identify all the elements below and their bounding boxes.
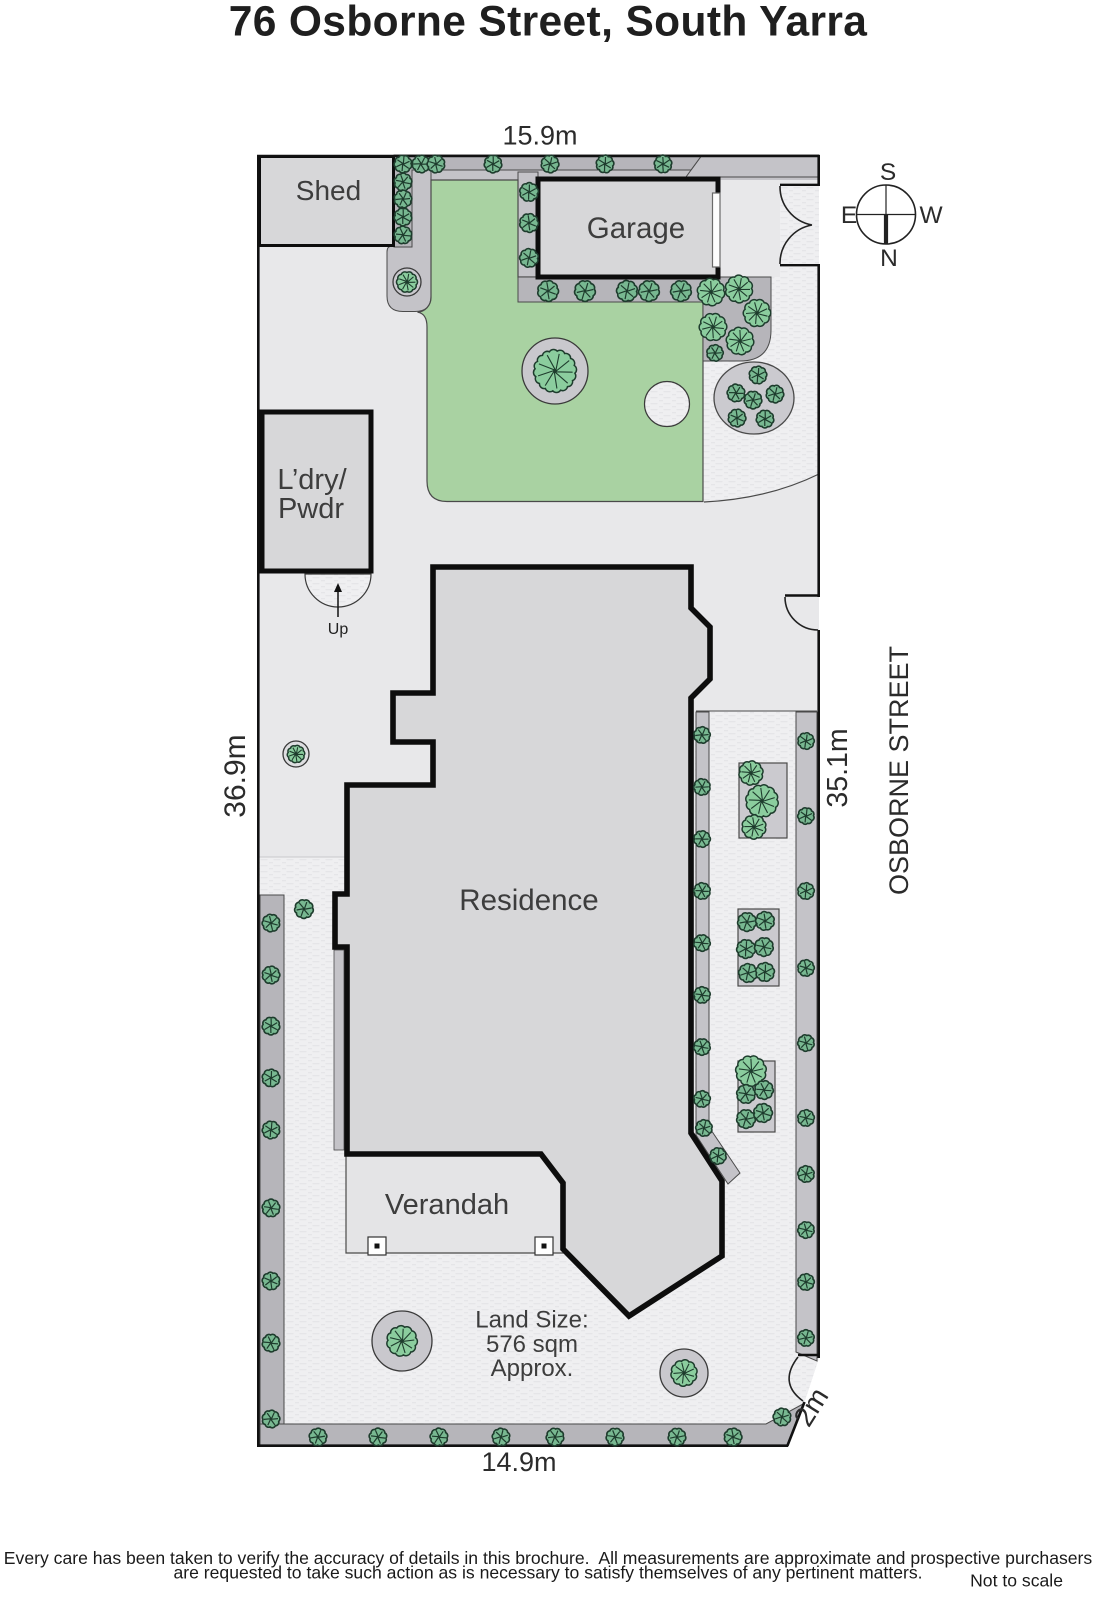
svg-text:576 sqm: 576 sqm bbox=[486, 1331, 578, 1358]
svg-text:15.9m: 15.9m bbox=[502, 121, 577, 151]
svg-text:Pwdr: Pwdr bbox=[278, 493, 344, 525]
svg-text:Garage: Garage bbox=[587, 212, 685, 245]
svg-text:14.9m: 14.9m bbox=[481, 1447, 556, 1477]
svg-text:Approx.: Approx. bbox=[491, 1355, 574, 1382]
svg-text:Land Size:: Land Size: bbox=[475, 1307, 588, 1334]
svg-text:N: N bbox=[880, 245, 898, 272]
svg-text:Up: Up bbox=[328, 621, 349, 638]
svg-text:Residence: Residence bbox=[459, 884, 598, 917]
svg-text:W: W bbox=[919, 202, 943, 229]
svg-text:35.1m: 35.1m bbox=[822, 728, 854, 807]
svg-text:S: S bbox=[880, 159, 896, 186]
svg-text:E: E bbox=[841, 202, 857, 229]
svg-text:Verandah: Verandah bbox=[385, 1189, 509, 1221]
svg-text:OSBORNE STREET: OSBORNE STREET bbox=[884, 646, 914, 895]
svg-text:Not to scale: Not to scale bbox=[970, 1571, 1063, 1591]
svg-text:Shed: Shed bbox=[296, 175, 361, 206]
svg-text:36.9m: 36.9m bbox=[219, 734, 252, 817]
svg-text:are requested to take such act: are requested to take such action as is … bbox=[173, 1563, 922, 1583]
svg-text:L’dry/: L’dry/ bbox=[277, 464, 347, 496]
svg-text:76 Osborne Street, South Yarra: 76 Osborne Street, South Yarra bbox=[229, 0, 868, 46]
